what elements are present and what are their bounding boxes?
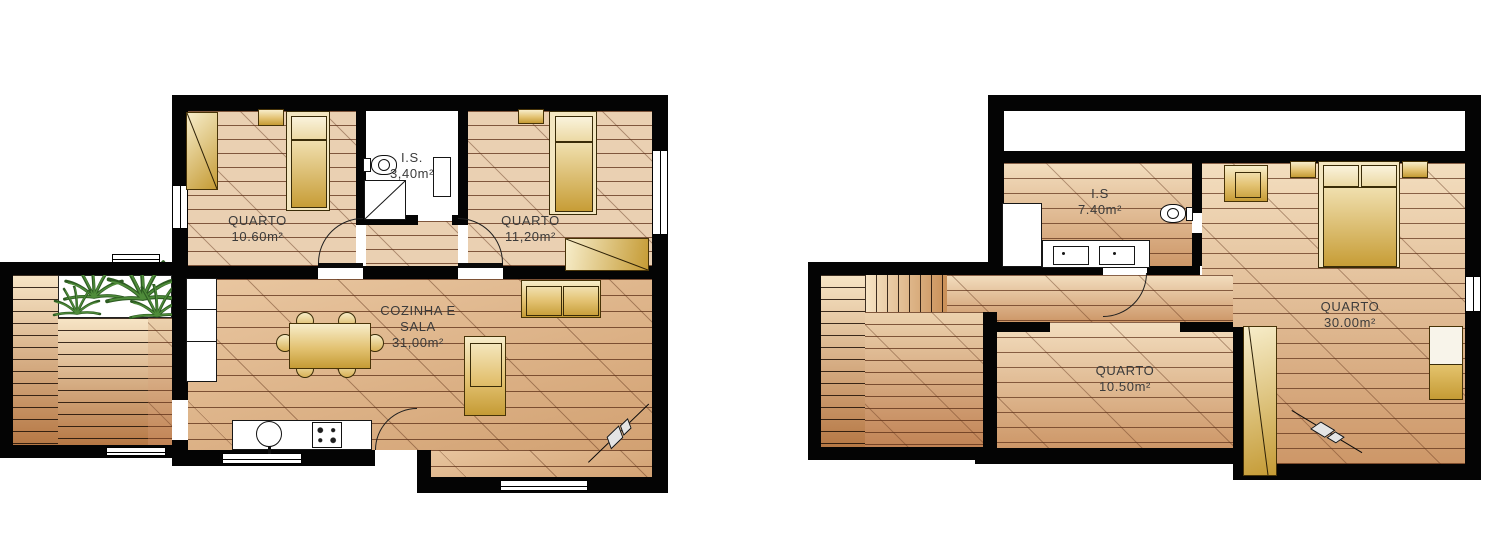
palm-plant-icon: [52, 286, 102, 336]
door-leaf: [318, 263, 363, 268]
wall-segment: [808, 447, 988, 460]
shower-tray: [364, 180, 406, 220]
window: [652, 150, 668, 235]
kitchen-counter: [232, 420, 372, 450]
room-label-living: COZINHA E SALA 31,00m²: [352, 303, 484, 351]
window: [112, 254, 160, 263]
dresser: [1224, 165, 1268, 202]
single-bed: [549, 111, 597, 215]
upper-void: [1004, 111, 1465, 151]
living-floor-extension: [417, 450, 652, 477]
upper-stairs-side: [821, 275, 865, 447]
window: [500, 480, 588, 491]
room-label-bathroom2: I.S 7.40m²: [1040, 186, 1160, 218]
sofa: [521, 280, 601, 318]
wall-segment: [172, 95, 668, 111]
room-label-bedroom-small: QUARTO 10.50m²: [1058, 363, 1192, 395]
window: [1465, 276, 1481, 312]
double-bed: [1318, 161, 1400, 268]
wall-segment: [363, 266, 458, 279]
wall-segment: [988, 95, 1481, 111]
vestibule-floor: [366, 221, 458, 266]
nightstand: [258, 109, 284, 126]
room-label-bedroom2: QUARTO 11,20m²: [468, 213, 593, 245]
wall-segment: [1241, 464, 1481, 480]
room-label-bedroom1: QUARTO 10.60m²: [195, 213, 320, 245]
wall-segment: [1233, 327, 1243, 448]
wall-segment: [0, 262, 172, 275]
wall-segment: [975, 448, 1241, 464]
wall-segment: [1192, 163, 1202, 213]
floor-plan-canvas: QUARTO 10.60m² I.S. 3,40m² QUARTO 11,20m…: [0, 0, 1507, 557]
wall-segment: [808, 262, 988, 275]
wall-segment: [983, 312, 997, 460]
wall-segment: [458, 111, 468, 223]
vanity-counter: [1042, 240, 1150, 268]
kitchen-sink-icon: [256, 421, 282, 447]
sink-tap: [268, 446, 271, 454]
wardrobe: [186, 112, 218, 190]
room-label-bedroom-large: QUARTO 30.00m²: [1285, 299, 1415, 331]
chaise: [1429, 326, 1463, 400]
window: [172, 185, 188, 229]
nightstand: [518, 109, 544, 124]
door-leaf: [458, 263, 503, 268]
wall-segment: [1147, 266, 1200, 275]
stove-icon: [312, 422, 342, 448]
bathroom-closet: [1002, 203, 1042, 267]
wall-segment: [417, 450, 431, 480]
upper-terrace-deck: [865, 312, 983, 447]
window: [222, 453, 302, 464]
nightstand: [1290, 161, 1316, 178]
hall-cabinet: [186, 278, 217, 382]
single-bed: [286, 111, 330, 211]
wardrobe: [1243, 326, 1277, 476]
wall-segment: [1192, 233, 1202, 266]
room-label-bathroom: I.S. 3,40m²: [366, 150, 458, 182]
toilet-icon: [1160, 204, 1186, 223]
wall-segment: [1180, 322, 1233, 332]
wall-segment: [808, 262, 821, 460]
toilet-tank: [1186, 207, 1193, 221]
upper-stairs-flight: [865, 274, 947, 312]
wall-segment: [0, 262, 13, 458]
wall-segment: [997, 322, 1050, 332]
window: [106, 447, 166, 456]
nightstand: [1402, 161, 1428, 178]
